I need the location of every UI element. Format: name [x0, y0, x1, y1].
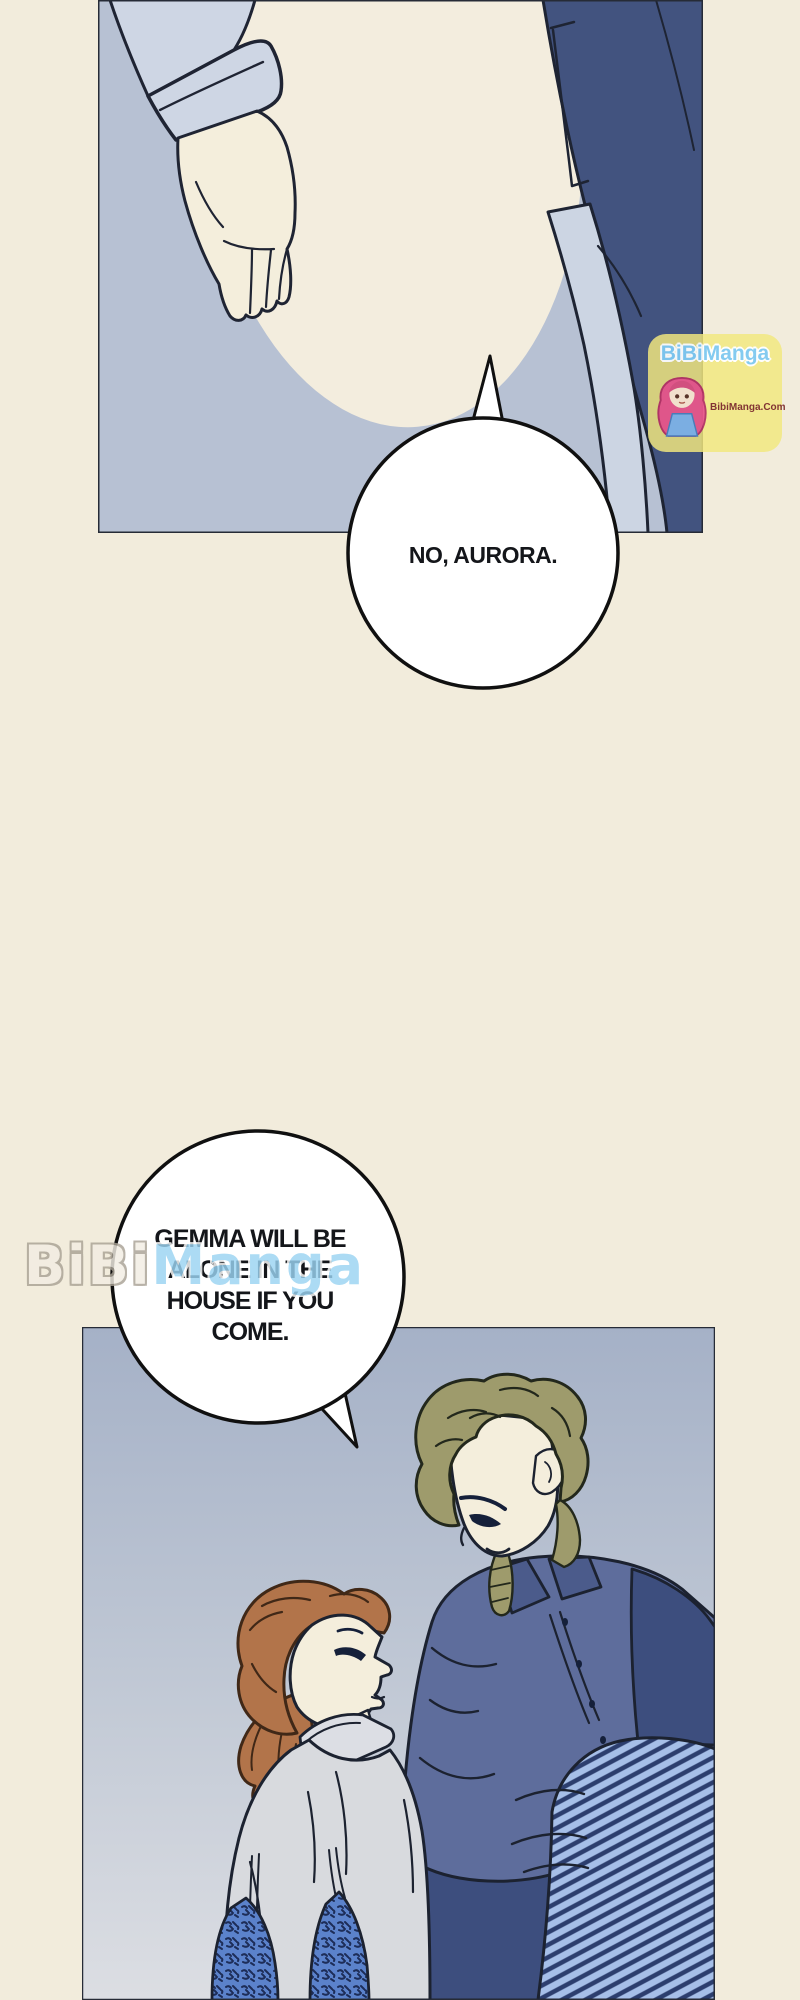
- manga-page: NO, AURORA. GEMMA WILL BE ALONE IN THE H…: [0, 0, 800, 2000]
- side-watermark-part1: BiBi: [24, 1234, 151, 1297]
- side-watermark-part2: Manga: [151, 1234, 365, 1297]
- bibimanga-side-watermark: BiBiManga: [24, 1234, 354, 1297]
- bibimanga-watermark-title: BiBiManga: [648, 342, 782, 366]
- bibimanga-watermark-badge: BiBiManga BibiManga.Com: [648, 334, 782, 452]
- watermark-title-part1: BiBi: [661, 342, 703, 365]
- chibi-girl-icon: [653, 372, 711, 440]
- speech-bubble-2-line-4: COME.: [110, 1317, 390, 1348]
- page-artwork: [0, 0, 800, 2000]
- bottom-panel: [82, 1327, 715, 2000]
- bibimanga-watermark-domain: BibiManga.Com: [710, 402, 780, 413]
- watermark-title-part2: Manga: [703, 342, 770, 365]
- striped-coat: [538, 1738, 715, 2000]
- speech-bubble-1-text: NO, AURORA.: [363, 542, 603, 569]
